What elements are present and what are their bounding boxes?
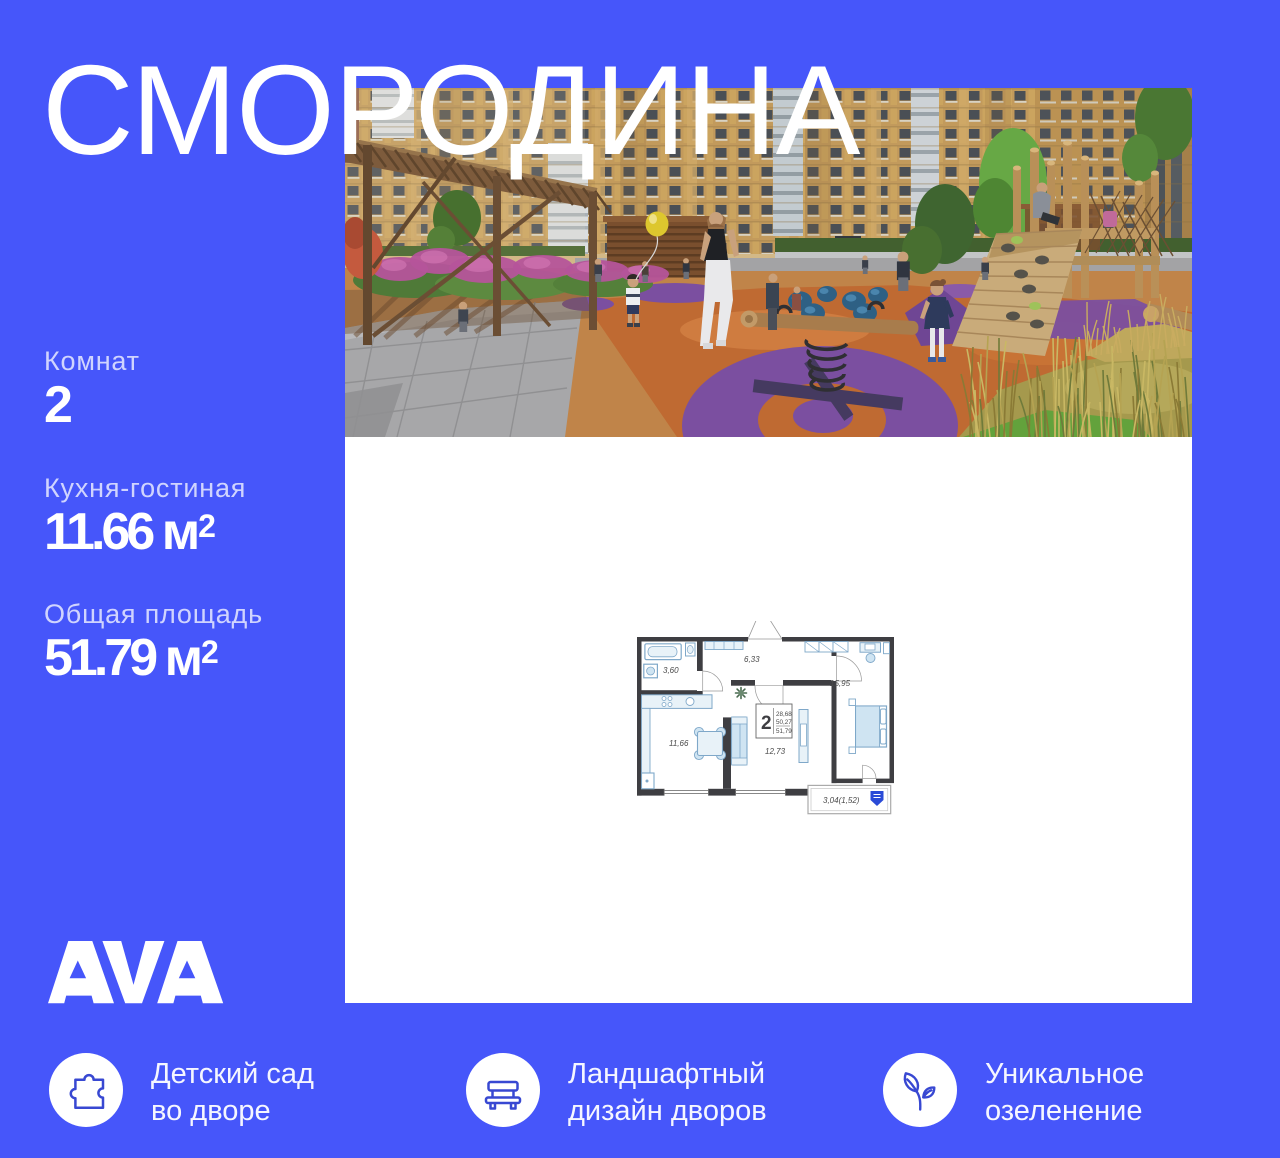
svg-text:50,27: 50,27 — [776, 719, 792, 726]
svg-text:11,66: 11,66 — [669, 739, 689, 748]
svg-text:2: 2 — [761, 713, 772, 734]
svg-text:3,04(1,52): 3,04(1,52) — [823, 796, 860, 805]
svg-text:51,79: 51,79 — [776, 728, 792, 735]
svg-text:12,73: 12,73 — [765, 747, 786, 756]
svg-text:6,33: 6,33 — [744, 655, 760, 664]
svg-text:3,60: 3,60 — [663, 666, 679, 675]
svg-text:15,95: 15,95 — [830, 679, 851, 688]
svg-text:28,68: 28,68 — [776, 711, 792, 718]
